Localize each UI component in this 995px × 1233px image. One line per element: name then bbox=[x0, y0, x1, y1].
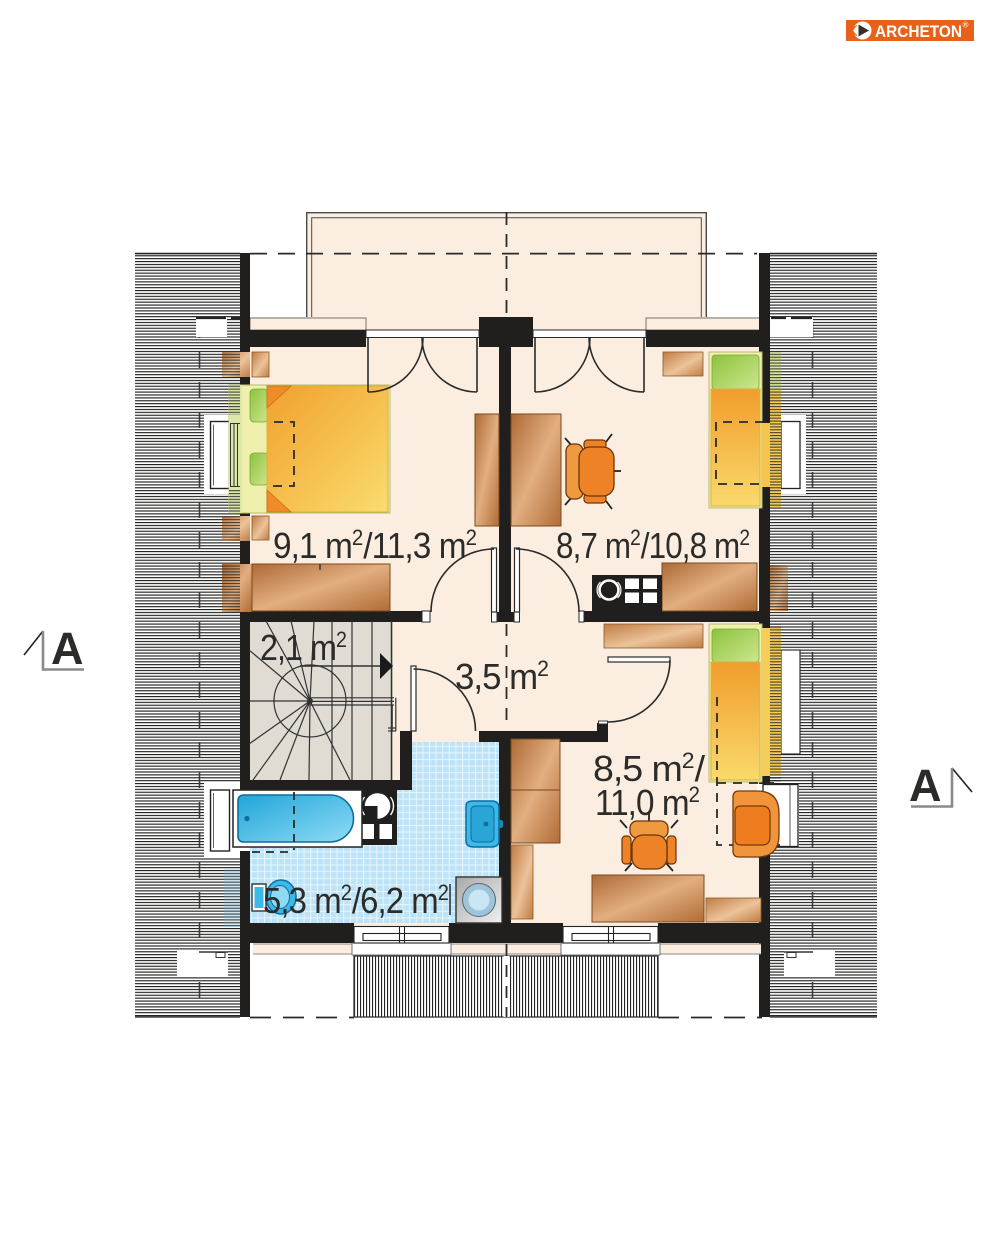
svg-text:3,5 m2: 3,5 m2 bbox=[455, 656, 549, 697]
svg-text:®: ® bbox=[963, 21, 969, 30]
svg-text:8,7 m2/10,8 m2: 8,7 m2/10,8 m2 bbox=[556, 525, 750, 566]
svg-text:5,3 m2/6,2 m2: 5,3 m2/6,2 m2 bbox=[263, 880, 449, 921]
svg-text:A: A bbox=[51, 623, 84, 674]
svg-text:ARCHETON: ARCHETON bbox=[875, 22, 962, 41]
svg-text:9,1 m2/11,3 m2: 9,1 m2/11,3 m2 bbox=[273, 525, 477, 566]
svg-text:2,1 m2: 2,1 m2 bbox=[260, 627, 347, 668]
svg-text:A: A bbox=[909, 760, 942, 811]
svg-text:11,0 m2: 11,0 m2 bbox=[595, 782, 700, 823]
